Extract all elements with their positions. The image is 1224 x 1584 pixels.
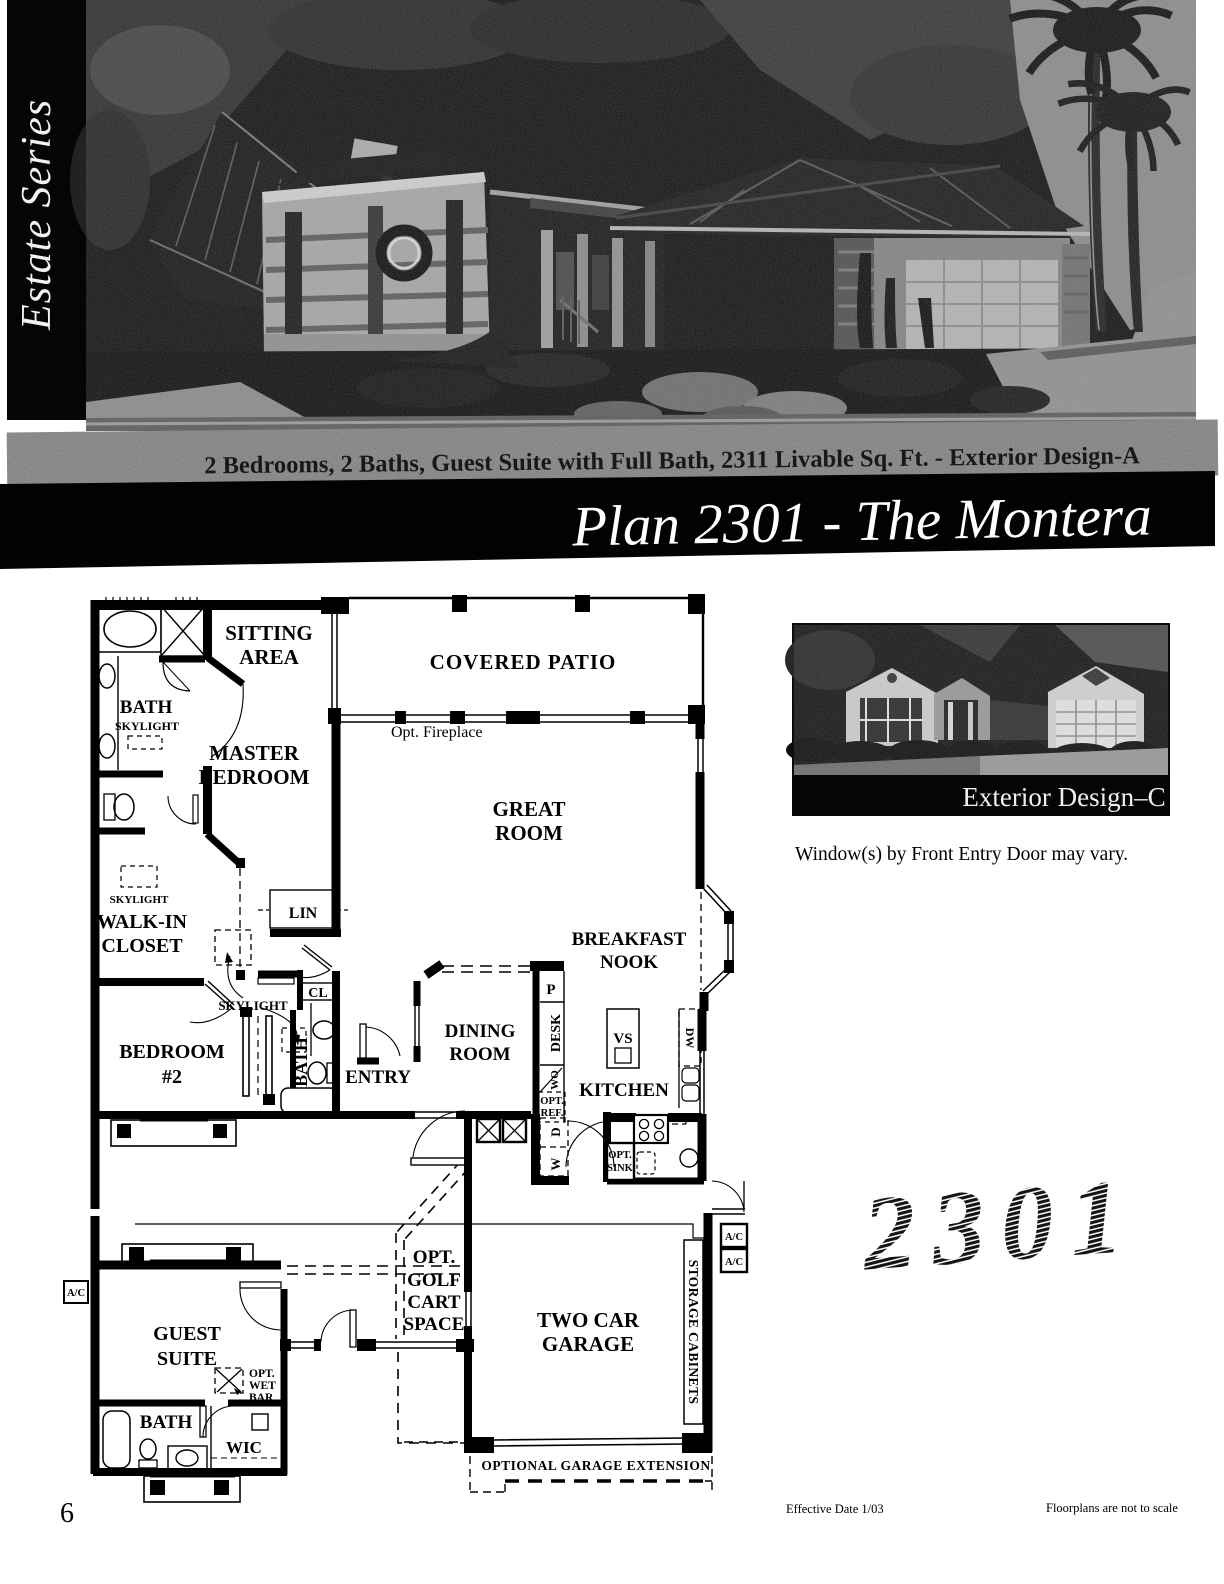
svg-text:DW: DW <box>683 1028 697 1049</box>
svg-text:GOLF: GOLF <box>407 1270 461 1291</box>
svg-text:WET: WET <box>249 1380 276 1392</box>
svg-text:ROOM: ROOM <box>495 821 563 845</box>
svg-text:Effective Date 1/03: Effective Date 1/03 <box>786 1502 884 1516</box>
svg-text:OPT.: OPT. <box>540 1096 564 1107</box>
svg-text:SUITE: SUITE <box>157 1348 217 1370</box>
svg-text:BEDROOM: BEDROOM <box>199 765 310 789</box>
svg-text:WIC: WIC <box>226 1438 262 1457</box>
svg-text:STORAGE CABINETS: STORAGE CABINETS <box>686 1260 701 1405</box>
svg-text:WO: WO <box>549 1070 561 1090</box>
svg-text:COVERED PATIO: COVERED PATIO <box>430 650 617 674</box>
svg-text:OPT.: OPT. <box>413 1247 455 1268</box>
svg-text:BREAKFAST: BREAKFAST <box>572 929 687 950</box>
svg-text:NOOK: NOOK <box>600 952 658 973</box>
svg-text:Opt. Fireplace: Opt. Fireplace <box>391 724 483 741</box>
svg-text:2301: 2301 <box>857 1157 1142 1293</box>
svg-text:KITCHEN: KITCHEN <box>579 1080 669 1101</box>
svg-text:D: D <box>548 1127 563 1136</box>
svg-text:P: P <box>546 982 555 998</box>
svg-text:DESK: DESK <box>549 1014 564 1052</box>
svg-text:VS: VS <box>613 1031 632 1047</box>
svg-text:SINK: SINK <box>607 1163 634 1174</box>
svg-text:6: 6 <box>60 1498 74 1529</box>
svg-text:BATH: BATH <box>120 697 173 718</box>
svg-text:WALK-IN: WALK-IN <box>97 911 188 933</box>
svg-text:GARAGE: GARAGE <box>542 1332 634 1356</box>
svg-text:MASTER: MASTER <box>209 741 300 765</box>
svg-text:SPACE: SPACE <box>404 1314 465 1335</box>
svg-text:A/C: A/C <box>725 1257 743 1268</box>
svg-text:OPTIONAL GARAGE EXTENSION: OPTIONAL GARAGE EXTENSION <box>481 1458 710 1473</box>
svg-text:#2: #2 <box>162 1066 182 1088</box>
svg-text:SITTING: SITTING <box>225 621 313 645</box>
svg-text:Window(s) by Front Entry Door: Window(s) by Front Entry Door may vary. <box>795 844 1128 865</box>
svg-text:Floorplans are not to scale: Floorplans are not to scale <box>1046 1501 1178 1515</box>
svg-text:TWO CAR: TWO CAR <box>537 1308 640 1332</box>
svg-text:A/C: A/C <box>725 1232 743 1243</box>
svg-text:Plan 2301 - The Montera: Plan 2301 - The Montera <box>571 484 1153 558</box>
svg-text:A/C: A/C <box>67 1288 85 1299</box>
svg-text:LIN: LIN <box>289 905 318 922</box>
svg-text:BATH: BATH <box>291 1037 311 1087</box>
svg-text:W: W <box>548 1158 563 1171</box>
svg-text:CART: CART <box>407 1292 460 1313</box>
svg-text:ENTRY: ENTRY <box>345 1067 411 1088</box>
svg-text:OPT.: OPT. <box>249 1368 275 1380</box>
svg-text:GUEST: GUEST <box>153 1323 221 1345</box>
svg-text:SKYLIGHT: SKYLIGHT <box>115 719 179 733</box>
svg-text:Exterior Design–C: Exterior Design–C <box>962 782 1165 812</box>
svg-text:GREAT: GREAT <box>492 797 565 821</box>
svg-text:CL: CL <box>308 986 327 1001</box>
svg-text:SKYLIGHT: SKYLIGHT <box>110 894 169 906</box>
svg-text:ROOM: ROOM <box>449 1044 510 1065</box>
svg-text:BATH: BATH <box>140 1412 193 1433</box>
svg-text:Estate Series: Estate Series <box>14 99 60 331</box>
svg-text:BEDROOM: BEDROOM <box>119 1041 225 1063</box>
svg-text:AREA: AREA <box>239 645 299 669</box>
svg-text:CLOSET: CLOSET <box>101 935 183 957</box>
svg-text:DINING: DINING <box>445 1021 516 1042</box>
